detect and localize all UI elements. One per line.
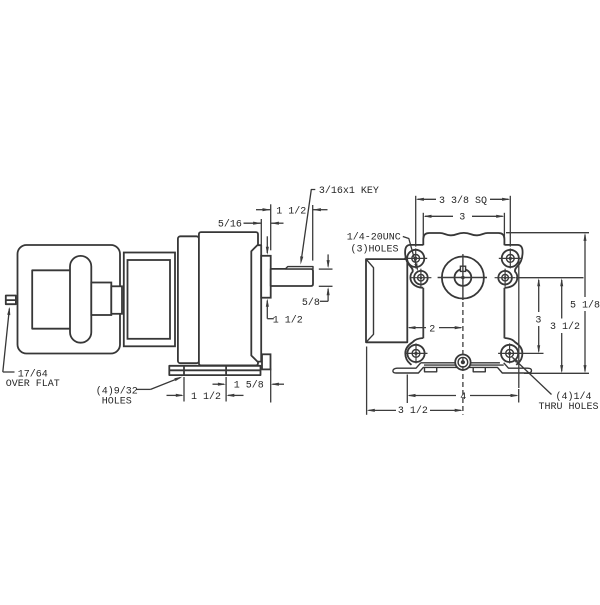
svg-text:1 1/2: 1 1/2 xyxy=(191,391,221,403)
svg-text:THRU HOLES: THRU HOLES xyxy=(538,402,598,413)
svg-text:5 1/8: 5 1/8 xyxy=(570,300,600,312)
svg-text:2: 2 xyxy=(429,324,435,335)
svg-text:3: 3 xyxy=(459,213,465,224)
svg-text:1 5/8: 1 5/8 xyxy=(234,380,264,392)
svg-text:(3)HOLES: (3)HOLES xyxy=(350,244,398,256)
svg-text:1 1/2: 1 1/2 xyxy=(273,314,303,326)
svg-text:HOLES: HOLES xyxy=(102,396,132,407)
svg-text:OVER FLAT: OVER FLAT xyxy=(6,379,60,390)
svg-text:3 1/2: 3 1/2 xyxy=(398,405,428,417)
svg-text:3 1/2: 3 1/2 xyxy=(550,321,580,333)
svg-text:1 1/2: 1 1/2 xyxy=(276,206,306,218)
svg-text:3: 3 xyxy=(535,316,541,327)
svg-text:3/16x1 KEY: 3/16x1 KEY xyxy=(319,185,379,197)
svg-text:5/8: 5/8 xyxy=(302,297,320,309)
svg-text:3 3/8 SQ: 3 3/8 SQ xyxy=(439,195,487,207)
svg-text:5/16: 5/16 xyxy=(218,219,242,231)
svg-text:1/4-20UNC: 1/4-20UNC xyxy=(347,232,401,244)
